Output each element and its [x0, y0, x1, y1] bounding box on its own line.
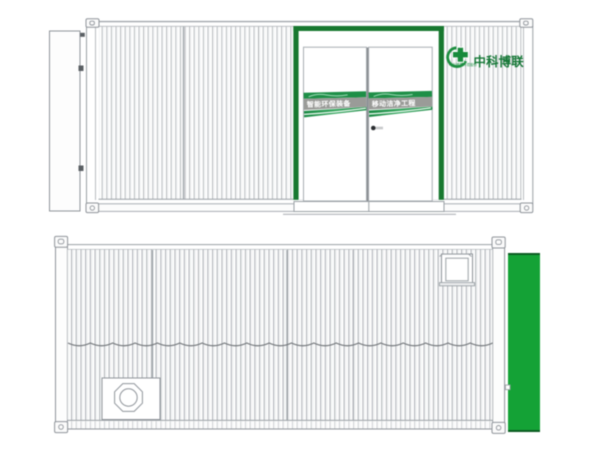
svg-text:中科博联: 中科博联	[474, 54, 525, 69]
